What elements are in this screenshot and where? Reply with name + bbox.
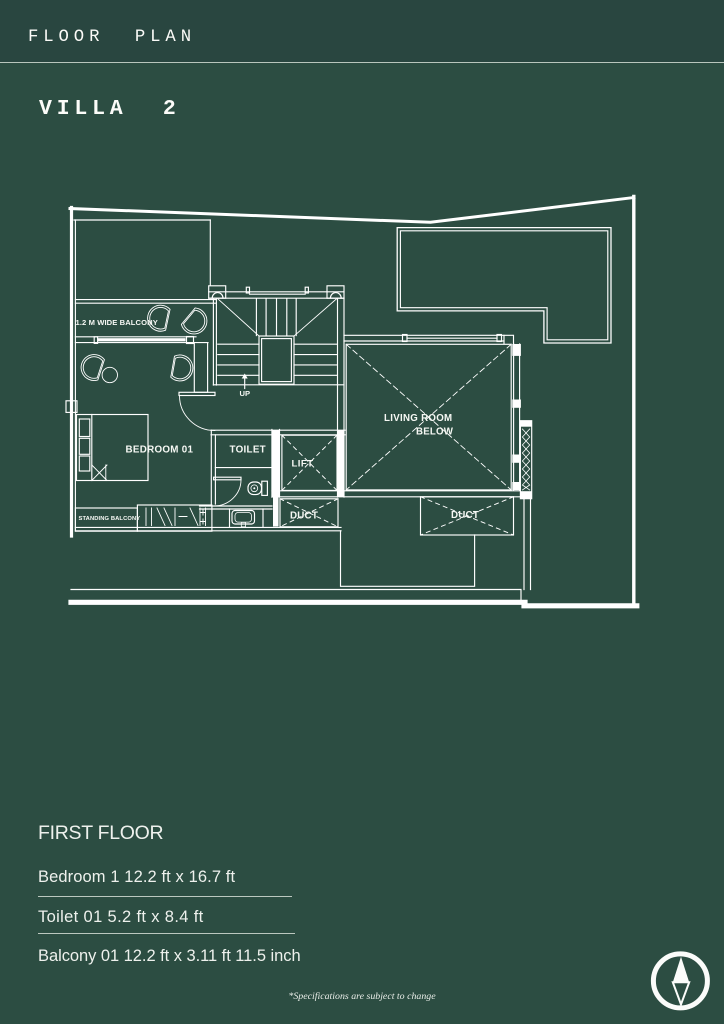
svg-text:LIVING ROOM: LIVING ROOM (384, 413, 452, 424)
svg-text:STANDING BALCONY: STANDING BALCONY (79, 516, 141, 522)
svg-text:1.2 M WIDE BALCONY: 1.2 M WIDE BALCONY (76, 318, 158, 327)
svg-text:DUCT: DUCT (451, 510, 479, 521)
svg-text:BEDROOM 01: BEDROOM 01 (126, 445, 194, 456)
svg-text:LIFT: LIFT (292, 459, 314, 470)
svg-text:UP: UP (240, 389, 251, 398)
svg-text:DUCT: DUCT (290, 510, 318, 521)
svg-text:BELOW: BELOW (416, 427, 454, 438)
svg-text:TOILET: TOILET (230, 445, 266, 456)
